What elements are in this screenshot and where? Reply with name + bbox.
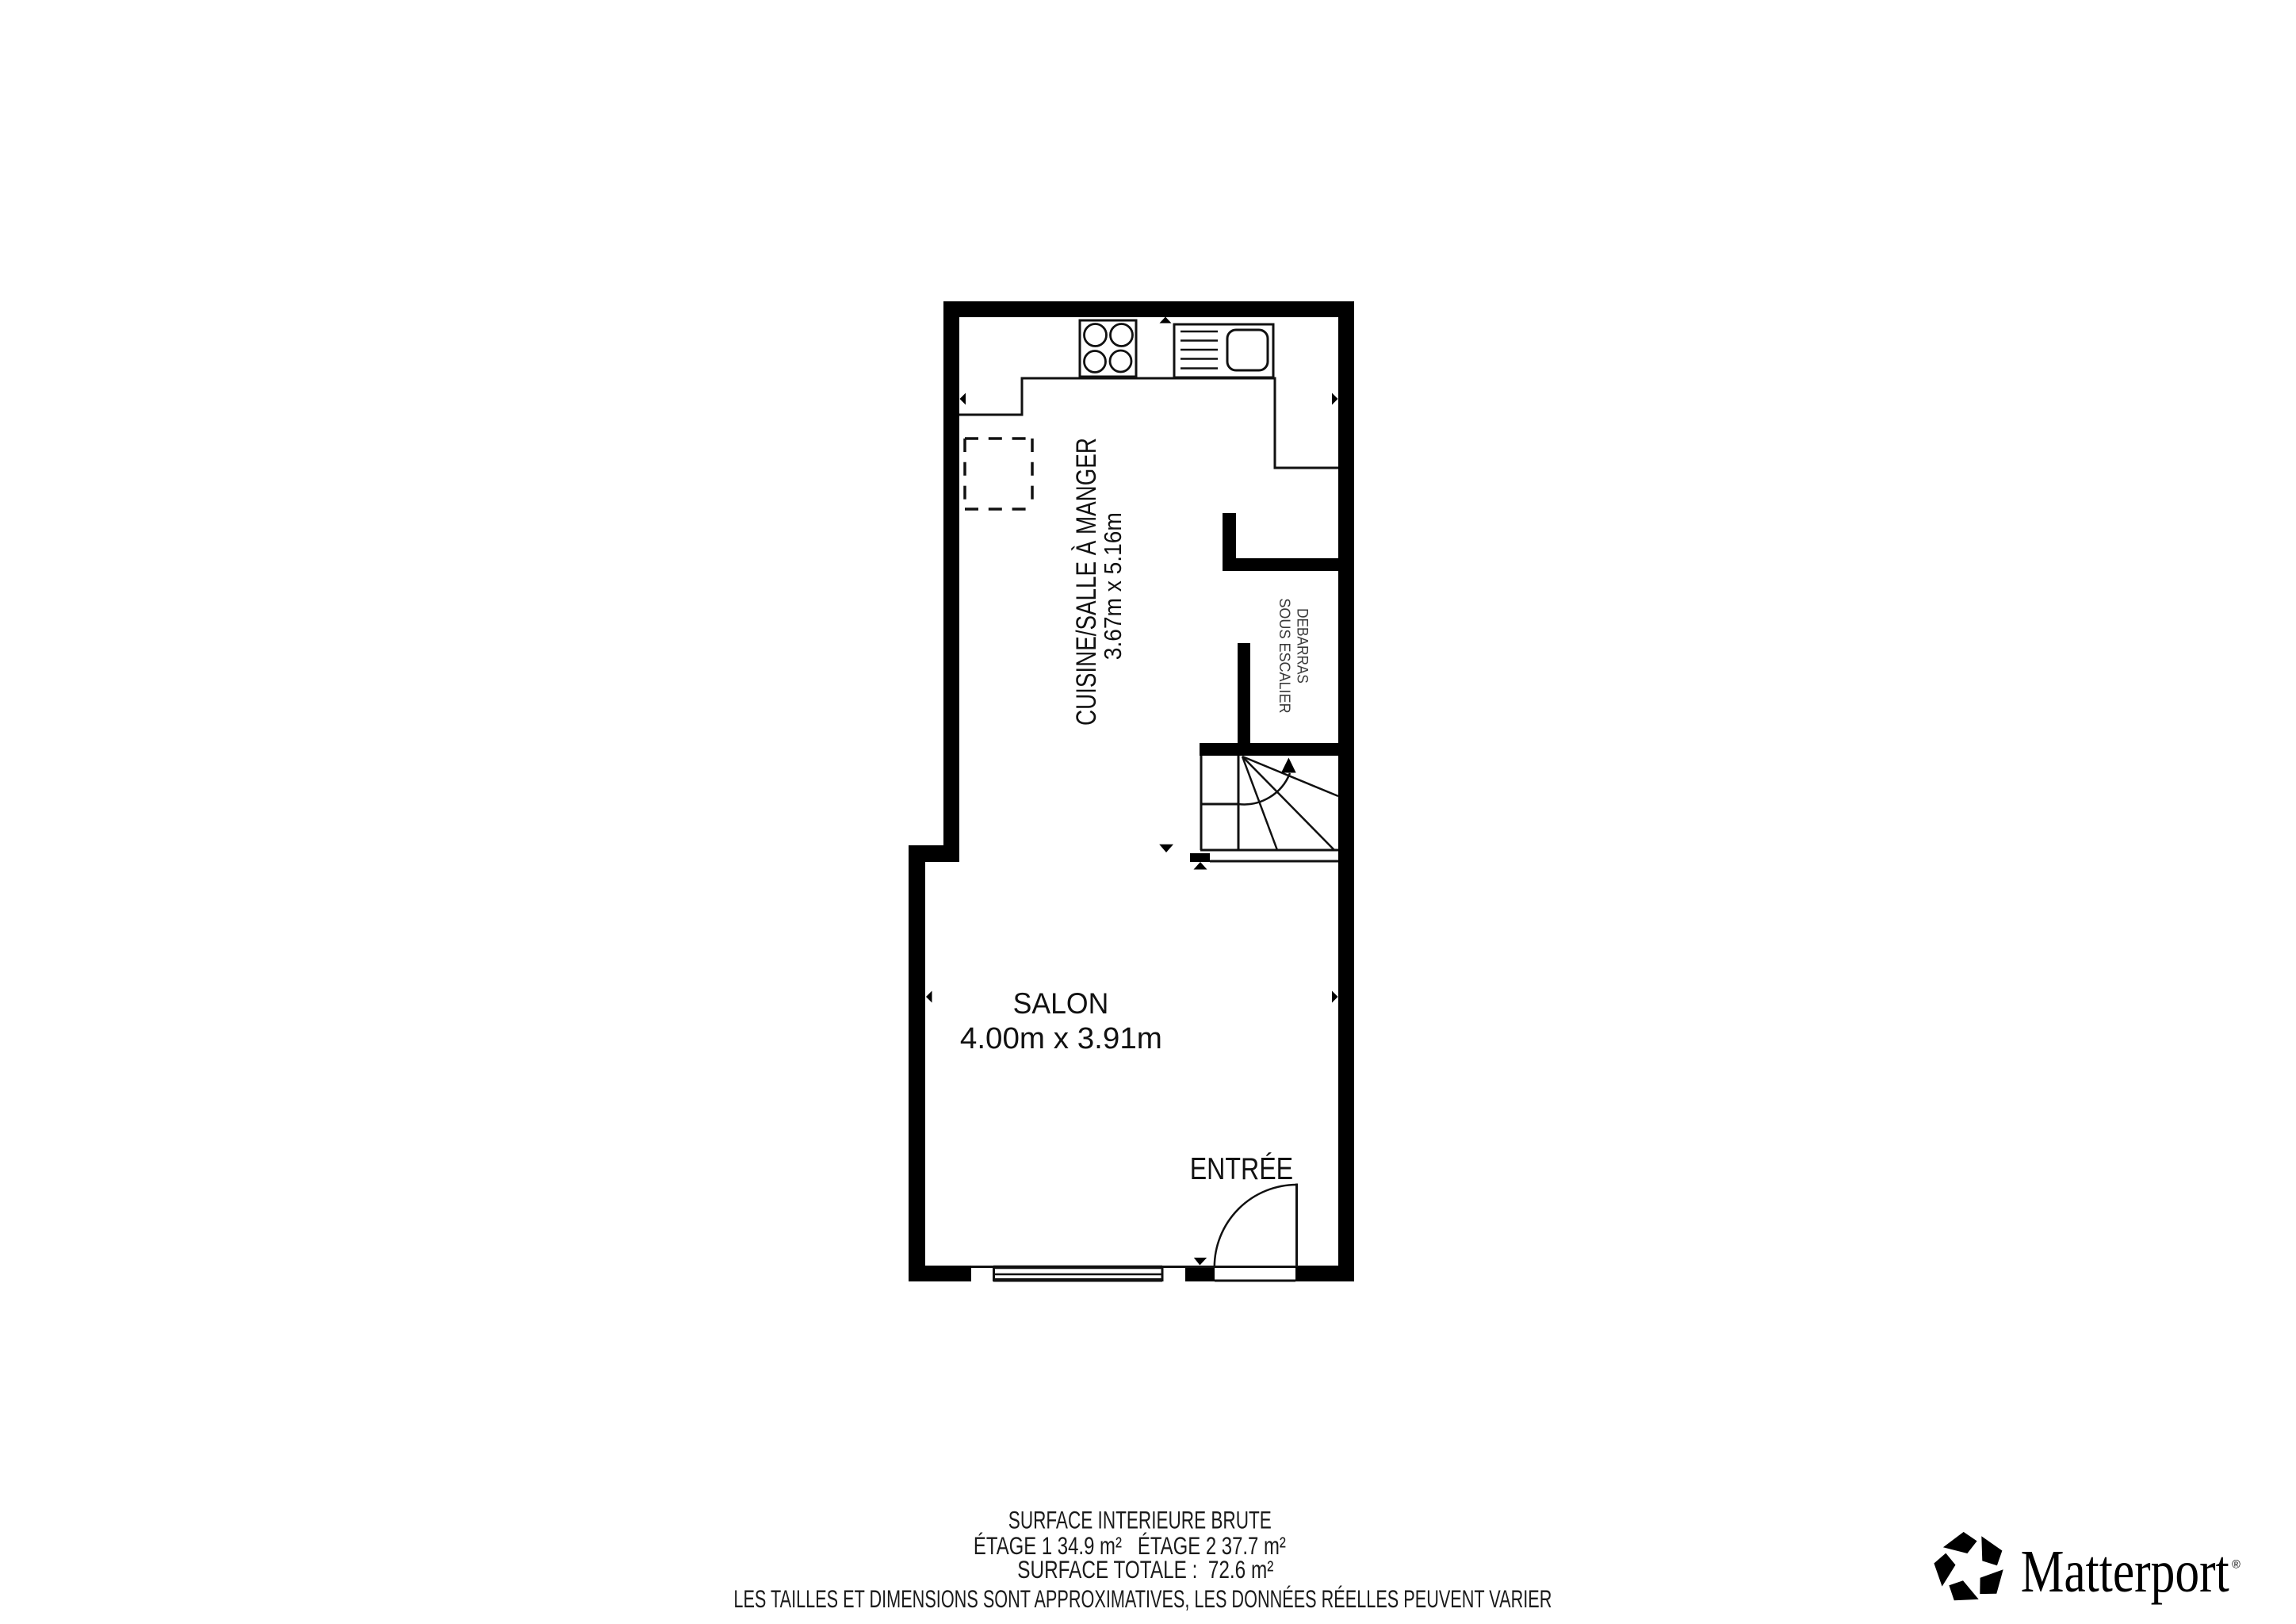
svg-text:SURFACE TOTALE : 72.6 m²: SURFACE TOTALE : 72.6 m² <box>1017 1555 1273 1584</box>
svg-text:LES TAILLES ET DIMENSIONS SONT: LES TAILLES ET DIMENSIONS SONT APPROXIMA… <box>733 1584 1552 1613</box>
svg-text:ENTRÉE: ENTRÉE <box>1190 1152 1293 1186</box>
svg-text:SURFACE INTERIEURE BRUTE: SURFACE INTERIEURE BRUTE <box>1008 1506 1272 1534</box>
svg-text:®: ® <box>2232 1559 2241 1572</box>
svg-text:3.67m x 5.16m: 3.67m x 5.16m <box>1099 512 1127 660</box>
svg-text:DEBARRAS: DEBARRAS <box>1294 608 1311 684</box>
svg-text:CUISINE/SALLE À MANGER: CUISINE/SALLE À MANGER <box>1070 438 1102 726</box>
svg-text:4.00m x 3.91m: 4.00m x 3.91m <box>960 1022 1162 1055</box>
svg-text:SOUS ESCALIER: SOUS ESCALIER <box>1276 598 1292 713</box>
svg-text:SALON: SALON <box>1013 987 1109 1020</box>
svg-text:Matterport: Matterport <box>2021 1538 2229 1605</box>
